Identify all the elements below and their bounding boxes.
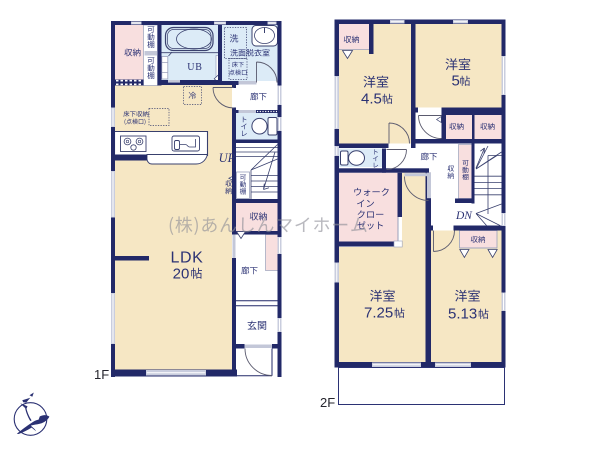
svg-text:DN: DN <box>455 210 473 222</box>
svg-text:5: 5 <box>452 73 460 90</box>
svg-text:20: 20 <box>173 266 190 283</box>
svg-text:2F: 2F <box>320 395 335 410</box>
svg-text:LDK: LDK <box>171 250 204 267</box>
svg-text:4.5: 4.5 <box>361 91 382 108</box>
svg-text:UB: UB <box>187 62 203 73</box>
svg-text:UP: UP <box>219 151 236 165</box>
svg-text:1F: 1F <box>94 367 109 382</box>
svg-text:5.13: 5.13 <box>448 306 477 323</box>
svg-text:7.25: 7.25 <box>364 305 393 322</box>
